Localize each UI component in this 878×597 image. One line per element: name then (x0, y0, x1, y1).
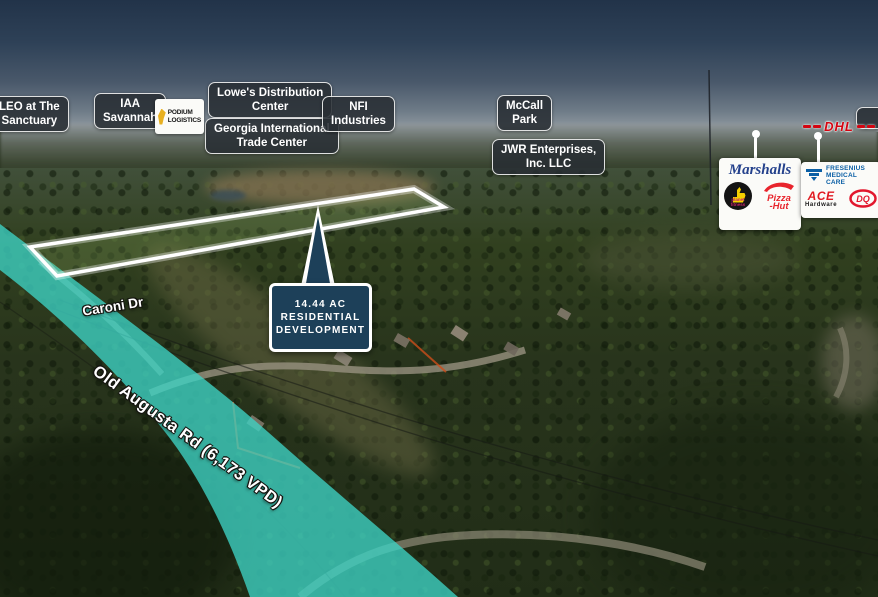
area-label-jwr-enterprises: JWR Enterprises, Inc. LLC (492, 139, 605, 175)
callout-line: RESIDENTIAL (272, 311, 369, 324)
ace-hardware-logo: ACE Hardware (805, 190, 837, 208)
label-line: McCall (506, 99, 543, 113)
callout-acreage: 14.44 AC (272, 298, 369, 311)
podium-logo-text: PODIUM LOGISTICS (168, 109, 201, 124)
dairy-queen-logo: DQ (849, 189, 877, 208)
area-label-georgia-international-trade-center: Georgia International Trade Center (205, 118, 339, 154)
label-line: Lowe's Distribution (217, 86, 323, 100)
label-line: Park (506, 113, 543, 127)
retail-logo-box-fresenius: FRESENIUS MEDICAL CARE ACE Hardware DQ (801, 162, 878, 218)
dhl-stripes-left-icon (803, 125, 821, 128)
label-line: Center (217, 100, 323, 114)
dhl-stripes-right-icon (857, 125, 875, 128)
dhl-logo: DHL (803, 118, 875, 135)
area-label-nfi-industries: NFI Industries (322, 96, 395, 132)
fresenius-triangle-icon (805, 168, 823, 183)
fresenius-medical-care-logo: FRESENIUS MEDICAL CARE (805, 165, 877, 186)
area-label-lowes-distribution-center: Lowe's Distribution Center (208, 82, 332, 118)
label-line: NFI (331, 100, 386, 114)
pizza-hut-roof-icon (763, 181, 795, 192)
label-line: Trade Center (214, 136, 330, 150)
label-line: LEO at The (0, 100, 60, 114)
leader-line-fresenius (817, 139, 820, 163)
callout-line: DEVELOPMENT (272, 324, 369, 337)
label-line: Inc. LLC (501, 157, 596, 171)
podium-logistics-logo: PODIUM LOGISTICS (155, 99, 204, 134)
label-line: Savannah (103, 111, 157, 125)
svg-text:DQ: DQ (856, 194, 870, 204)
leader-line-marshalls (754, 137, 757, 159)
svg-text:fitness: fitness (731, 202, 746, 207)
area-label-leo-sanctuary: LEO at The Sanctuary (0, 96, 69, 132)
label-line: Sanctuary (0, 114, 60, 128)
area-label-mccall-park: McCall Park (497, 95, 552, 131)
label-line: Georgia International (214, 122, 330, 136)
label-line: JWR Enterprises, (501, 143, 596, 157)
label-line: IAA (103, 97, 157, 111)
planet-fitness-logo: planet fitness (723, 181, 753, 211)
dhl-wordmark: DHL (824, 119, 854, 134)
label-line: Industries (331, 114, 386, 128)
marshalls-logo: Marshalls (722, 162, 798, 179)
aerial-marketing-map: 14.44 AC RESIDENTIAL DEVELOPMENT Caroni … (0, 0, 878, 597)
pizza-hut-logo: Pizza -Hut (761, 181, 797, 212)
parcel-callout: 14.44 AC RESIDENTIAL DEVELOPMENT (269, 283, 372, 352)
podium-emblem-icon (158, 109, 166, 125)
retail-logo-box-marshalls: Marshalls planet fitness Pizza -Hut (719, 158, 801, 230)
